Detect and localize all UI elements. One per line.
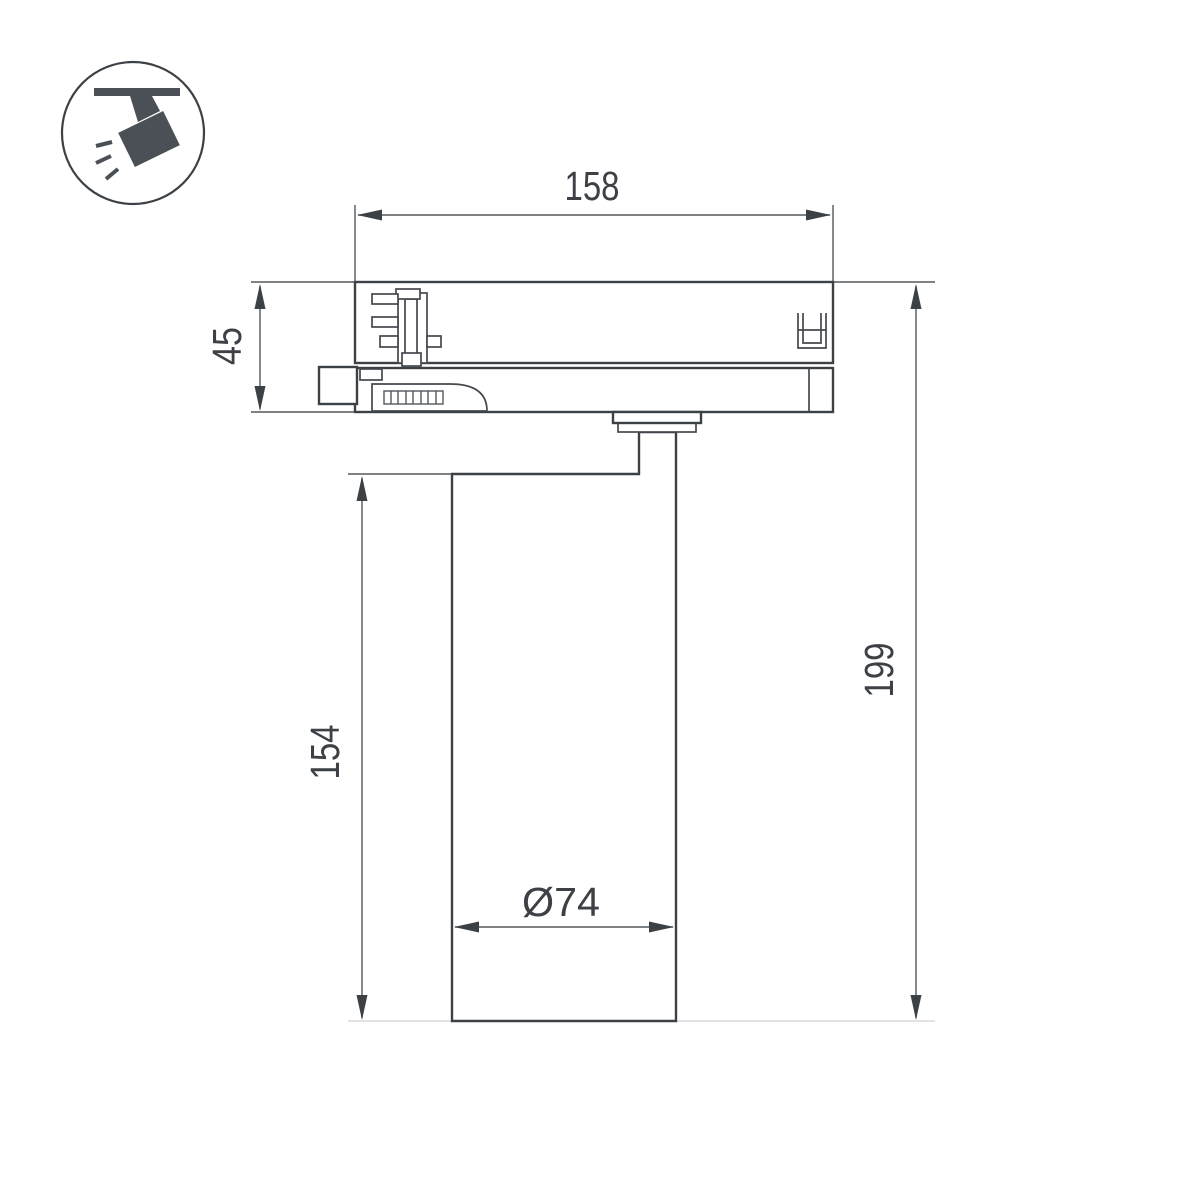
contact-foot bbox=[402, 353, 421, 366]
lamp-assembly bbox=[452, 412, 701, 1021]
contact-prong-top bbox=[372, 294, 398, 304]
drawing-canvas: 158 45 154 199 Ø74 bbox=[0, 0, 1200, 1200]
dim-199-arrow-bottom bbox=[911, 995, 922, 1020]
track-light-icon bbox=[62, 62, 204, 204]
dim-154-arrow-bottom bbox=[357, 995, 368, 1020]
dim-158-label: 158 bbox=[565, 163, 620, 209]
dimension-adapter-width: 158 bbox=[355, 163, 833, 281]
dim-199-label: 199 bbox=[856, 643, 902, 698]
dimension-total-height: 199 bbox=[856, 284, 922, 1020]
lamp-body-cylinder bbox=[452, 432, 676, 1021]
dim-74-label: Ø74 bbox=[522, 879, 600, 925]
locking-lever bbox=[372, 384, 487, 411]
latch-block bbox=[319, 367, 357, 404]
dim-158-arrow-left bbox=[357, 210, 382, 221]
dim-158-arrow-right bbox=[806, 210, 831, 221]
dim-45-arrow-bottom bbox=[255, 386, 266, 411]
technical-drawing-svg: 158 45 154 199 Ø74 bbox=[0, 0, 1200, 1200]
dim-45-arrow-top bbox=[255, 284, 266, 309]
dim-154-label: 154 bbox=[302, 725, 348, 780]
track-adapter bbox=[251, 282, 935, 412]
dim-45-label: 45 bbox=[204, 327, 250, 365]
joint-collar-upper bbox=[613, 412, 701, 423]
contact-prong-bottom bbox=[380, 336, 398, 347]
dim-199-arrow-top bbox=[911, 284, 922, 309]
contact-prong-middle bbox=[372, 317, 398, 327]
contact-tab-right bbox=[427, 336, 441, 347]
joint-collar-lower bbox=[618, 423, 696, 432]
dimension-adapter-height: 45 bbox=[204, 284, 266, 411]
icon-track-bar bbox=[94, 88, 180, 96]
contact-cap bbox=[396, 289, 420, 299]
latch-tab bbox=[360, 369, 382, 380]
dimension-body-height: 154 bbox=[302, 474, 451, 1020]
dim-154-arrow-top bbox=[357, 476, 368, 501]
